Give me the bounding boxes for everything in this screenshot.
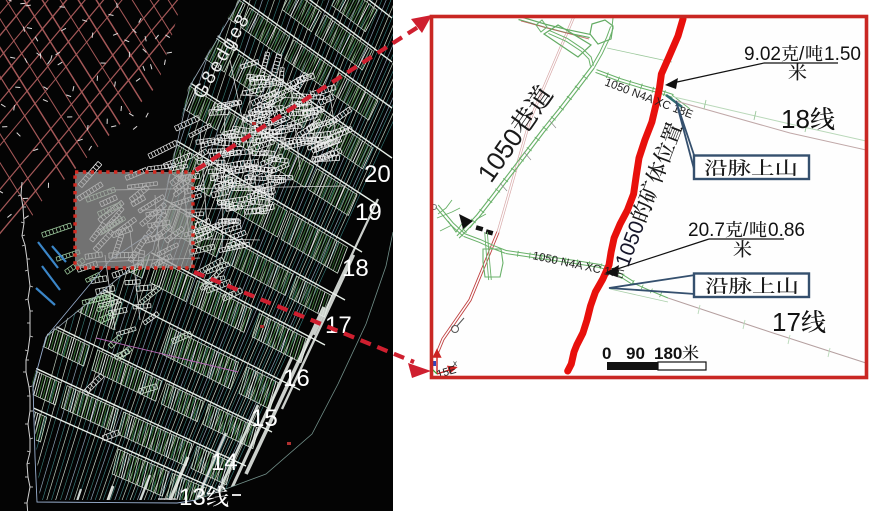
svg-text:17: 17 <box>772 307 801 337</box>
svg-text:18: 18 <box>342 255 369 282</box>
svg-text:0.86: 0.86 <box>768 220 805 241</box>
svg-text:20.7: 20.7 <box>688 220 725 241</box>
svg-text:14: 14 <box>211 449 238 476</box>
svg-text:16: 16 <box>283 365 310 392</box>
svg-text:/: / <box>743 220 749 241</box>
svg-text:/: / <box>799 44 805 65</box>
svg-text:9.02: 9.02 <box>744 44 781 65</box>
svg-text:19: 19 <box>355 199 382 226</box>
svg-text:20: 20 <box>364 161 391 188</box>
svg-text:13: 13 <box>179 484 206 511</box>
svg-text:18: 18 <box>781 104 810 134</box>
svg-text:1.50: 1.50 <box>824 44 861 65</box>
svg-text:0: 0 <box>602 344 611 363</box>
svg-text:90: 90 <box>626 344 645 363</box>
svg-text:15: 15 <box>251 405 278 432</box>
svg-text:180: 180 <box>654 344 682 363</box>
